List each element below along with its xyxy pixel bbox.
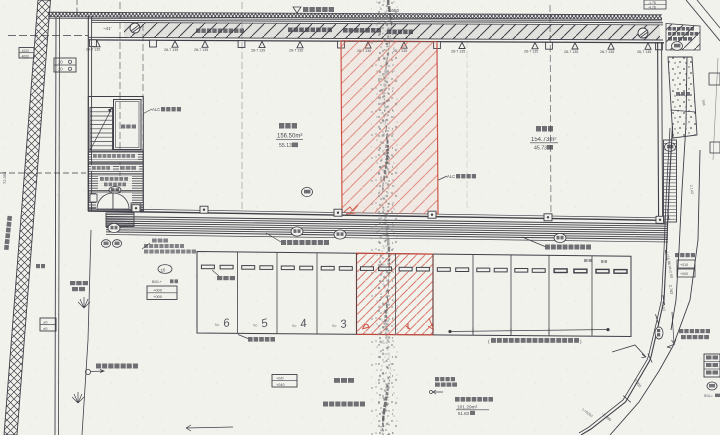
svg-text:No: No (253, 324, 257, 328)
svg-text:~41': ~41' (103, 26, 112, 31)
svg-text:28-7 135: 28-7 135 (564, 50, 578, 54)
svg-text:28-7 135: 28-7 135 (524, 50, 538, 54)
svg-text:-4000: -4000 (21, 54, 30, 58)
svg-text:28-7 135: 28-7 135 (194, 48, 208, 52)
svg-text:28-7 135: 28-7 135 (451, 49, 465, 53)
svg-text:-4.78: -4.78 (648, 5, 656, 9)
svg-text:28-7 135: 28-7 135 (289, 49, 303, 53)
svg-text:SGL=: SGL= (704, 394, 713, 398)
svg-text:55.13: 55.13 (279, 143, 292, 149)
svg-text:+0/0: +0/0 (276, 377, 284, 381)
svg-text:±0: ±0 (58, 67, 63, 72)
svg-text:28-7 135: 28-7 135 (251, 48, 265, 52)
svg-text:28-7 135: 28-7 135 (164, 48, 178, 52)
svg-text:-1000: -1000 (21, 49, 30, 53)
svg-text:No: No (215, 323, 219, 327)
svg-text:±0: ±0 (43, 326, 48, 331)
svg-text:+010: +010 (680, 263, 688, 267)
svg-text:+000: +000 (680, 272, 688, 276)
svg-text:-1.78: -1.78 (648, 1, 656, 5)
svg-text:No: No (332, 324, 336, 328)
svg-text:51.83: 51.83 (458, 411, 470, 416)
svg-text:45.73: 45.73 (534, 146, 547, 152)
svg-text:+040: +040 (276, 383, 285, 387)
svg-text:±0: ±0 (161, 267, 166, 272)
svg-text:±0: ±0 (58, 60, 63, 65)
svg-text:ALC: ALC (447, 174, 455, 179)
svg-text:No: No (292, 324, 296, 328)
svg-text:154.73m²: 154.73m² (531, 137, 556, 143)
svg-text:28-7 135: 28-7 135 (637, 50, 651, 54)
svg-text:BGL+: BGL+ (152, 280, 163, 284)
svg-text:+000: +000 (153, 294, 163, 299)
svg-text:±0: ±0 (43, 319, 48, 324)
svg-text:28-7 135: 28-7 135 (600, 50, 614, 54)
svg-text:156.50m²: 156.50m² (277, 134, 302, 140)
svg-text:+000: +000 (153, 288, 163, 293)
svg-text:ALC: ALC (152, 107, 160, 112)
